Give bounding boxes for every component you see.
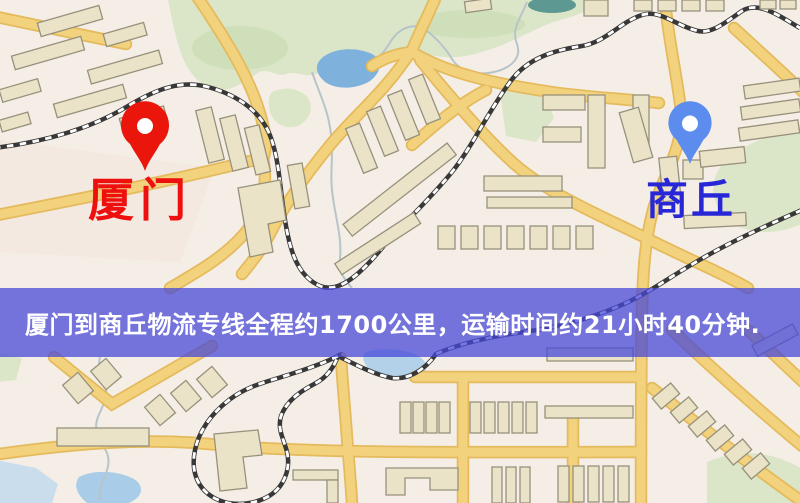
- destination-marker-hole: [682, 115, 698, 131]
- route-info-banner: 厦门到商丘物流专线全程约1700公里，运输时间约21小时40分钟.: [0, 288, 800, 357]
- destination-city-label: 商丘: [646, 179, 736, 221]
- route-info-text: 厦门到商丘物流专线全程约1700公里，运输时间约21小时40分钟.: [0, 305, 760, 340]
- origin-city-label: 厦门: [88, 177, 192, 223]
- map-view[interactable]: 厦门 商丘 厦门到商丘物流专线全程约1700公里，运输时间约21小时40分钟.: [0, 0, 800, 503]
- origin-marker-hole: [137, 118, 153, 134]
- map-canvas: [0, 0, 800, 503]
